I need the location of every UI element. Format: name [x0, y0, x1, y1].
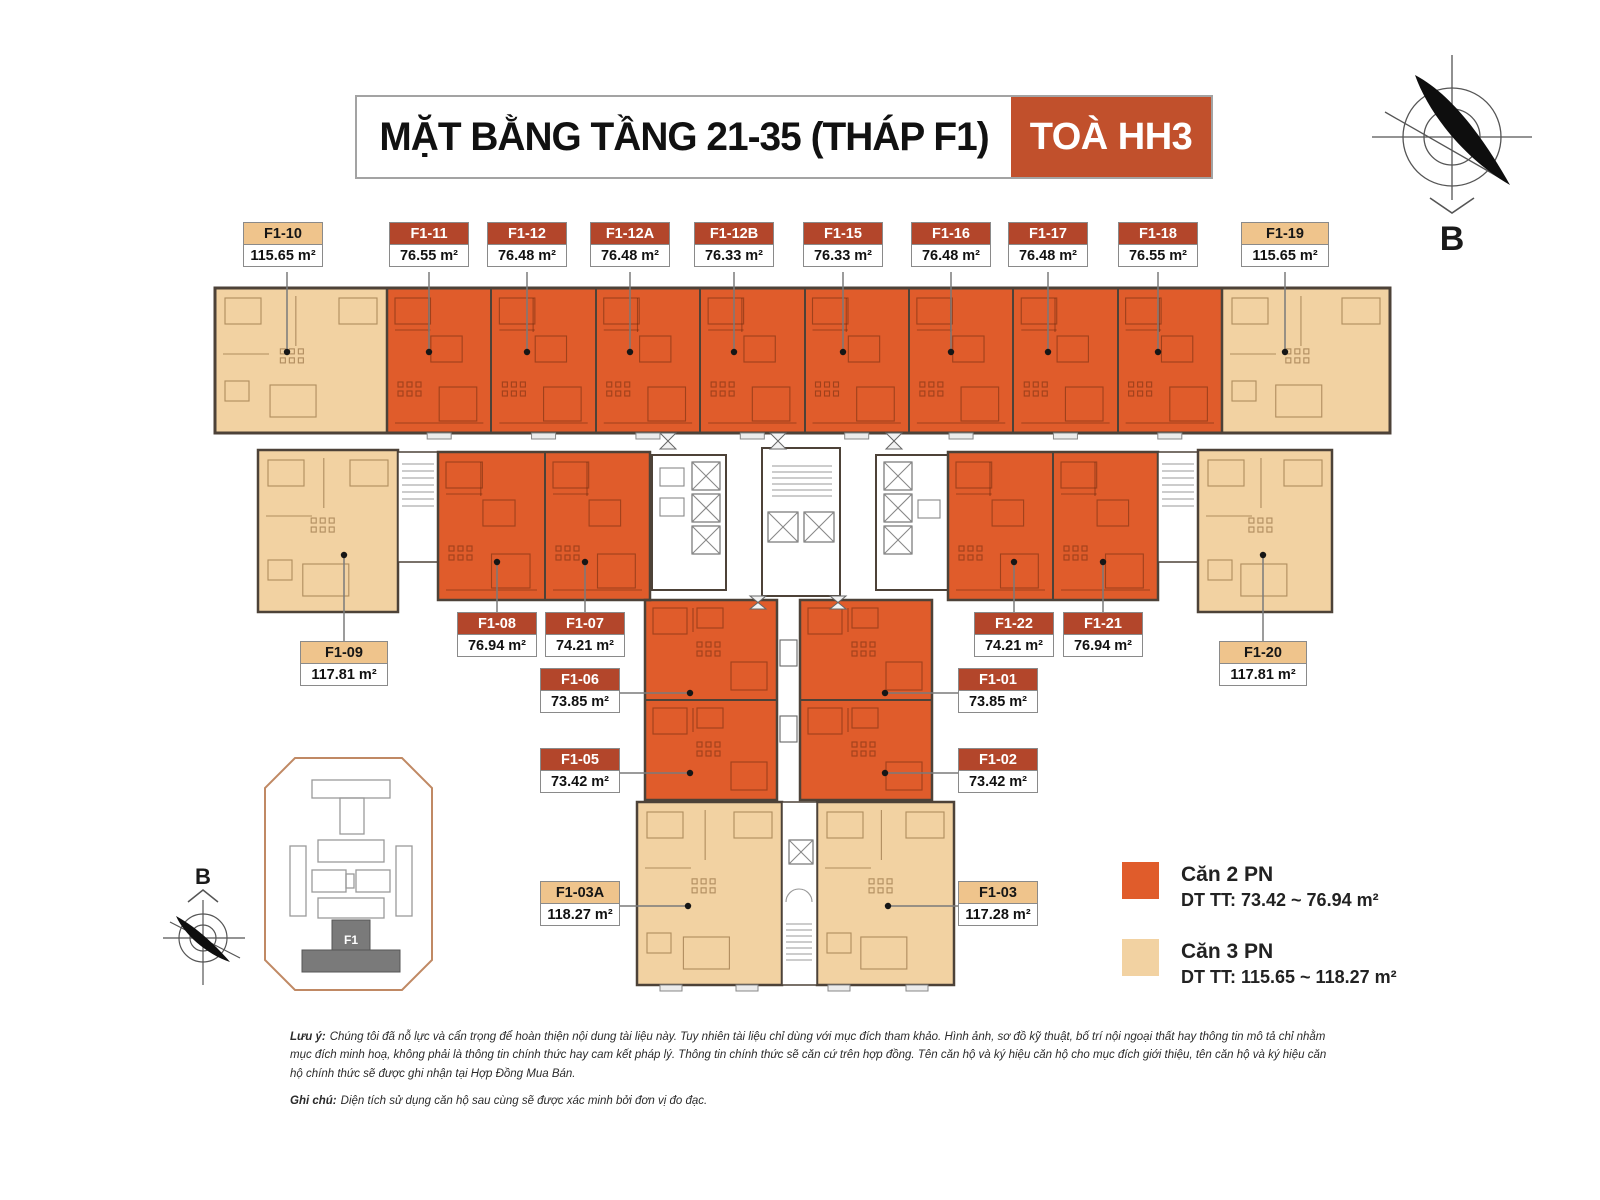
footer-notes: Lưu ý:Chúng tôi đã nỗ lực và cẩn trọng đ…	[290, 1028, 1338, 1120]
unit-label-f1-18: F1-1876.55 m²	[1118, 222, 1198, 267]
mini-compass-icon: B	[163, 864, 245, 985]
legend-item-3pn: Căn 3 PN DT TT: 115.65 ~ 118.27 m²	[1122, 939, 1452, 990]
unit-label-f1-12: F1-1276.48 m²	[487, 222, 567, 267]
note-ghi-chu: Ghi chú:Diện tích sử dụng căn hộ sau cùn…	[290, 1092, 1338, 1110]
unit-label-f1-11: F1-1176.55 m²	[389, 222, 469, 267]
unit-label-f1-07: F1-0774.21 m²	[545, 612, 625, 657]
legend-swatch-3pn	[1122, 939, 1159, 976]
tower-badge: TOÀ HH3	[1011, 97, 1211, 177]
legend: Căn 2 PN DT TT: 73.42 ~ 76.94 m² Căn 3 P…	[1122, 862, 1452, 1015]
floor-plan-svg: B F1 B	[0, 0, 1600, 1200]
mini-map-tower-label: F1	[344, 933, 358, 947]
unit-label-f1-16: F1-1676.48 m²	[911, 222, 991, 267]
legend-name-2pn: Căn 2 PN	[1181, 862, 1379, 888]
unit-label-f1-10: F1-10115.65 m²	[243, 222, 323, 267]
unit-label-f1-08: F1-0876.94 m²	[457, 612, 537, 657]
unit-label-f1-22: F1-2274.21 m²	[974, 612, 1054, 657]
legend-name-3pn: Căn 3 PN	[1181, 939, 1397, 965]
title-bar: MẶT BẰNG TẦNG 21-35 (THÁP F1) TOÀ HH3	[355, 95, 1213, 179]
unit-label-f1-09: F1-09117.81 m²	[300, 641, 388, 686]
unit-label-f1-21: F1-2176.94 m²	[1063, 612, 1143, 657]
unit-label-f1-19: F1-19115.65 m²	[1241, 222, 1329, 267]
mini-site-map: F1	[265, 758, 432, 990]
unit-label-f1-12a: F1-12A76.48 m²	[590, 222, 670, 267]
legend-swatch-2pn	[1122, 862, 1159, 899]
legend-item-2pn: Căn 2 PN DT TT: 73.42 ~ 76.94 m²	[1122, 862, 1452, 913]
mini-compass-label: B	[195, 864, 211, 889]
compass-icon: B	[1372, 55, 1532, 258]
floor-plan-page: { "title": { "main": "MẶT BẰNG TẦNG 21-3…	[0, 0, 1600, 1200]
legend-detail-2pn: DT TT: 73.42 ~ 76.94 m²	[1181, 888, 1379, 912]
unit-label-f1-20: F1-20117.81 m²	[1219, 641, 1307, 686]
unit-label-f1-03: F1-03117.28 m²	[958, 881, 1038, 926]
page-title: MẶT BẰNG TẦNG 21-35 (THÁP F1)	[357, 97, 1011, 177]
unit-label-f1-01: F1-0173.85 m²	[958, 668, 1038, 713]
note-luu-y: Lưu ý:Chúng tôi đã nỗ lực và cẩn trọng đ…	[290, 1028, 1338, 1083]
compass-label: B	[1440, 220, 1465, 258]
unit-label-f1-12b: F1-12B76.33 m²	[694, 222, 774, 267]
unit-label-f1-15: F1-1576.33 m²	[803, 222, 883, 267]
legend-detail-3pn: DT TT: 115.65 ~ 118.27 m²	[1181, 965, 1397, 989]
unit-label-f1-05: F1-0573.42 m²	[540, 748, 620, 793]
unit-label-f1-02: F1-0273.42 m²	[958, 748, 1038, 793]
unit-label-f1-06: F1-0673.85 m²	[540, 668, 620, 713]
unit-label-f1-03a: F1-03A118.27 m²	[540, 881, 620, 926]
unit-label-f1-17: F1-1776.48 m²	[1008, 222, 1088, 267]
